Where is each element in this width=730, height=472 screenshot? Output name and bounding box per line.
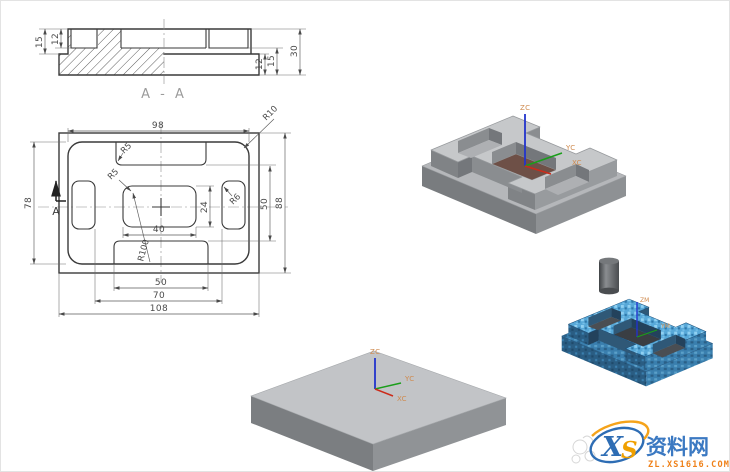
section-hatching <box>59 29 164 75</box>
iso-finished-part: ZC YC XC <box>394 97 659 251</box>
logo-ellipse: X S <box>587 422 649 468</box>
plan-centerlines <box>38 123 288 283</box>
axis-label-xc: XC <box>397 395 407 403</box>
dim-bottom-slot: 50 <box>155 278 167 288</box>
radius-center-pocket: R5 <box>106 167 121 182</box>
section-view: 15 12 12 15 30 A - A <box>19 4 319 108</box>
cad-tutorial-image: 15 12 12 15 30 A - A <box>0 0 730 472</box>
iso-simulation: ZM YM <box>549 249 730 393</box>
dim-right-inner: 12 <box>255 58 265 70</box>
axis-label-ym: YM <box>660 323 670 330</box>
iso-simulation-render: ZM YM <box>549 249 730 389</box>
dim-pocket-height: 24 <box>200 201 210 213</box>
axis-label-xc: XC <box>572 159 582 167</box>
radius-top-slot: R5 <box>119 141 134 156</box>
dim-right-outer: 30 <box>290 45 300 57</box>
iso-stock-block: ZC YC XC <box>244 343 519 472</box>
dim-pocket-width: 40 <box>153 225 165 235</box>
dim-right-inner: 50 <box>260 198 270 210</box>
watermark-logo: X S 资料网 ZL.XS1616.COM <box>569 414 730 472</box>
dim-bottom-overall: 108 <box>150 304 168 314</box>
watermark-site-name: 资料网 <box>646 435 709 459</box>
watermark-site-url: ZL.XS1616.COM <box>648 460 730 470</box>
dim-left-inner: 12 <box>51 33 61 45</box>
plan-dimensions: 98 78 50 88 24 40 50 70 108 R10 R5 R5 R6… <box>24 104 291 317</box>
iso-stock-render: ZC YC XC <box>244 343 519 472</box>
logo-letter-s: S <box>621 437 638 464</box>
section-view-drawing: 15 12 12 15 30 A - A <box>19 4 319 104</box>
plan-part-outline <box>59 133 259 273</box>
watermark: X S 资料网 ZL.XS1616.COM <box>569 414 730 472</box>
radius-corner: R10 <box>261 104 280 123</box>
axis-label-zc: ZC <box>370 348 380 356</box>
plan-view-drawing: 98 78 50 88 24 40 50 70 108 R10 R5 R5 R6… <box>16 101 316 336</box>
dim-left-outer: 15 <box>35 36 45 48</box>
dim-bottom-pockets: 70 <box>153 291 165 301</box>
section-label: A - A <box>141 87 187 102</box>
stock-block-body <box>251 351 506 471</box>
axis-label-zc: ZC <box>520 104 530 112</box>
section-cut-label: A <box>52 205 60 218</box>
axis-label-yc: YC <box>565 144 575 152</box>
axis-label-yc: YC <box>404 375 414 383</box>
machined-part-gray <box>422 116 626 234</box>
dim-left-height: 78 <box>24 197 34 209</box>
dim-right-mid: 15 <box>267 55 277 67</box>
dim-right-outer: 88 <box>275 197 285 209</box>
axis-label-zm: ZM <box>640 297 649 304</box>
dim-top-width: 98 <box>152 121 164 131</box>
cutting-tool-cylinder <box>599 258 619 295</box>
plan-view: 98 78 50 88 24 40 50 70 108 R10 R5 R5 R6… <box>16 101 316 340</box>
iso-finished-part-render: ZC YC XC <box>394 97 659 247</box>
